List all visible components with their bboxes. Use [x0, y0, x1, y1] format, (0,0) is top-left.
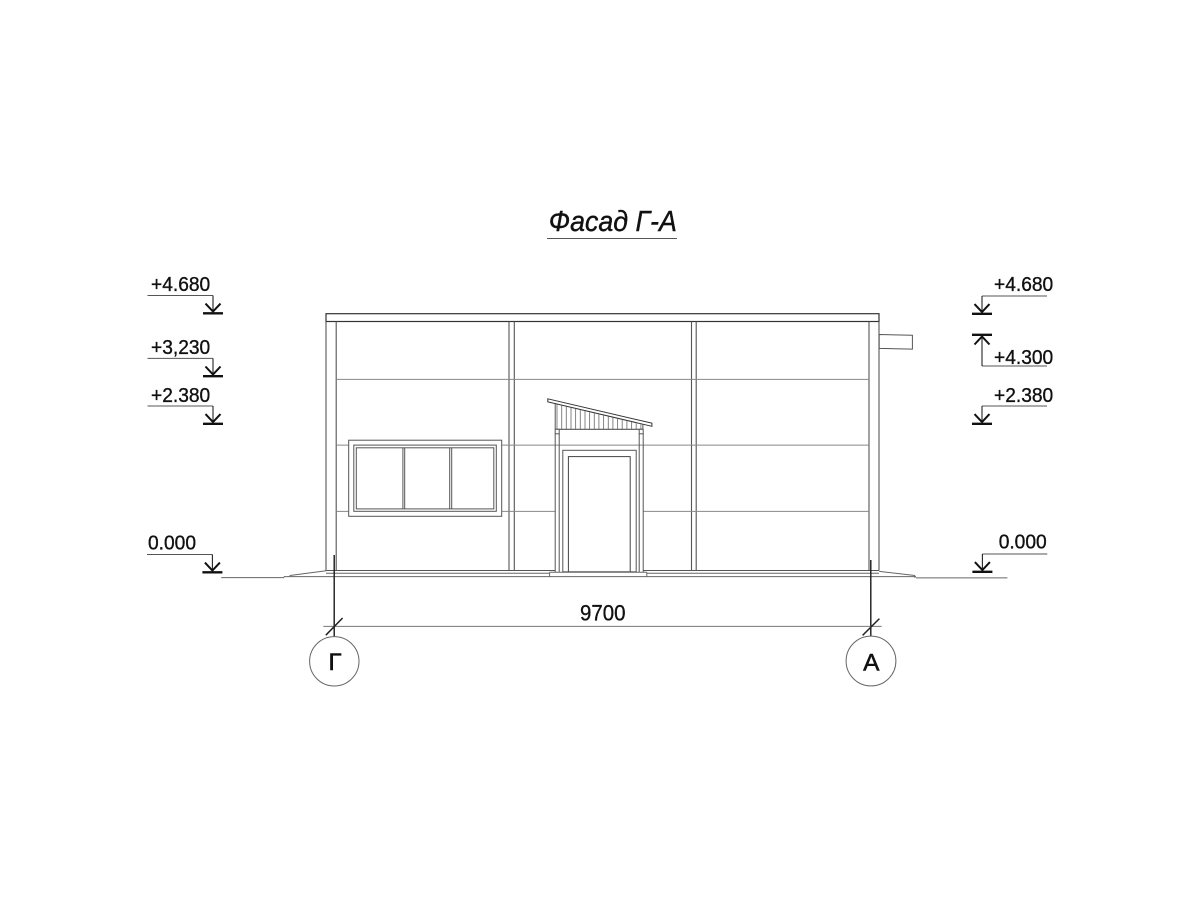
svg-text:0.000: 0.000: [999, 532, 1047, 554]
svg-text:А: А: [863, 650, 880, 677]
svg-text:+4.680: +4.680: [994, 274, 1053, 296]
svg-text:Фасад Г-А: Фасад Г-А: [549, 206, 677, 238]
svg-text:0.000: 0.000: [148, 533, 196, 555]
svg-text:+4.680: +4.680: [151, 274, 210, 296]
svg-text:9700: 9700: [580, 601, 626, 626]
svg-text:+3,230: +3,230: [151, 337, 210, 359]
svg-text:Г: Г: [329, 649, 342, 676]
svg-text:+2.380: +2.380: [994, 385, 1053, 407]
svg-text:+2.380: +2.380: [151, 385, 210, 407]
